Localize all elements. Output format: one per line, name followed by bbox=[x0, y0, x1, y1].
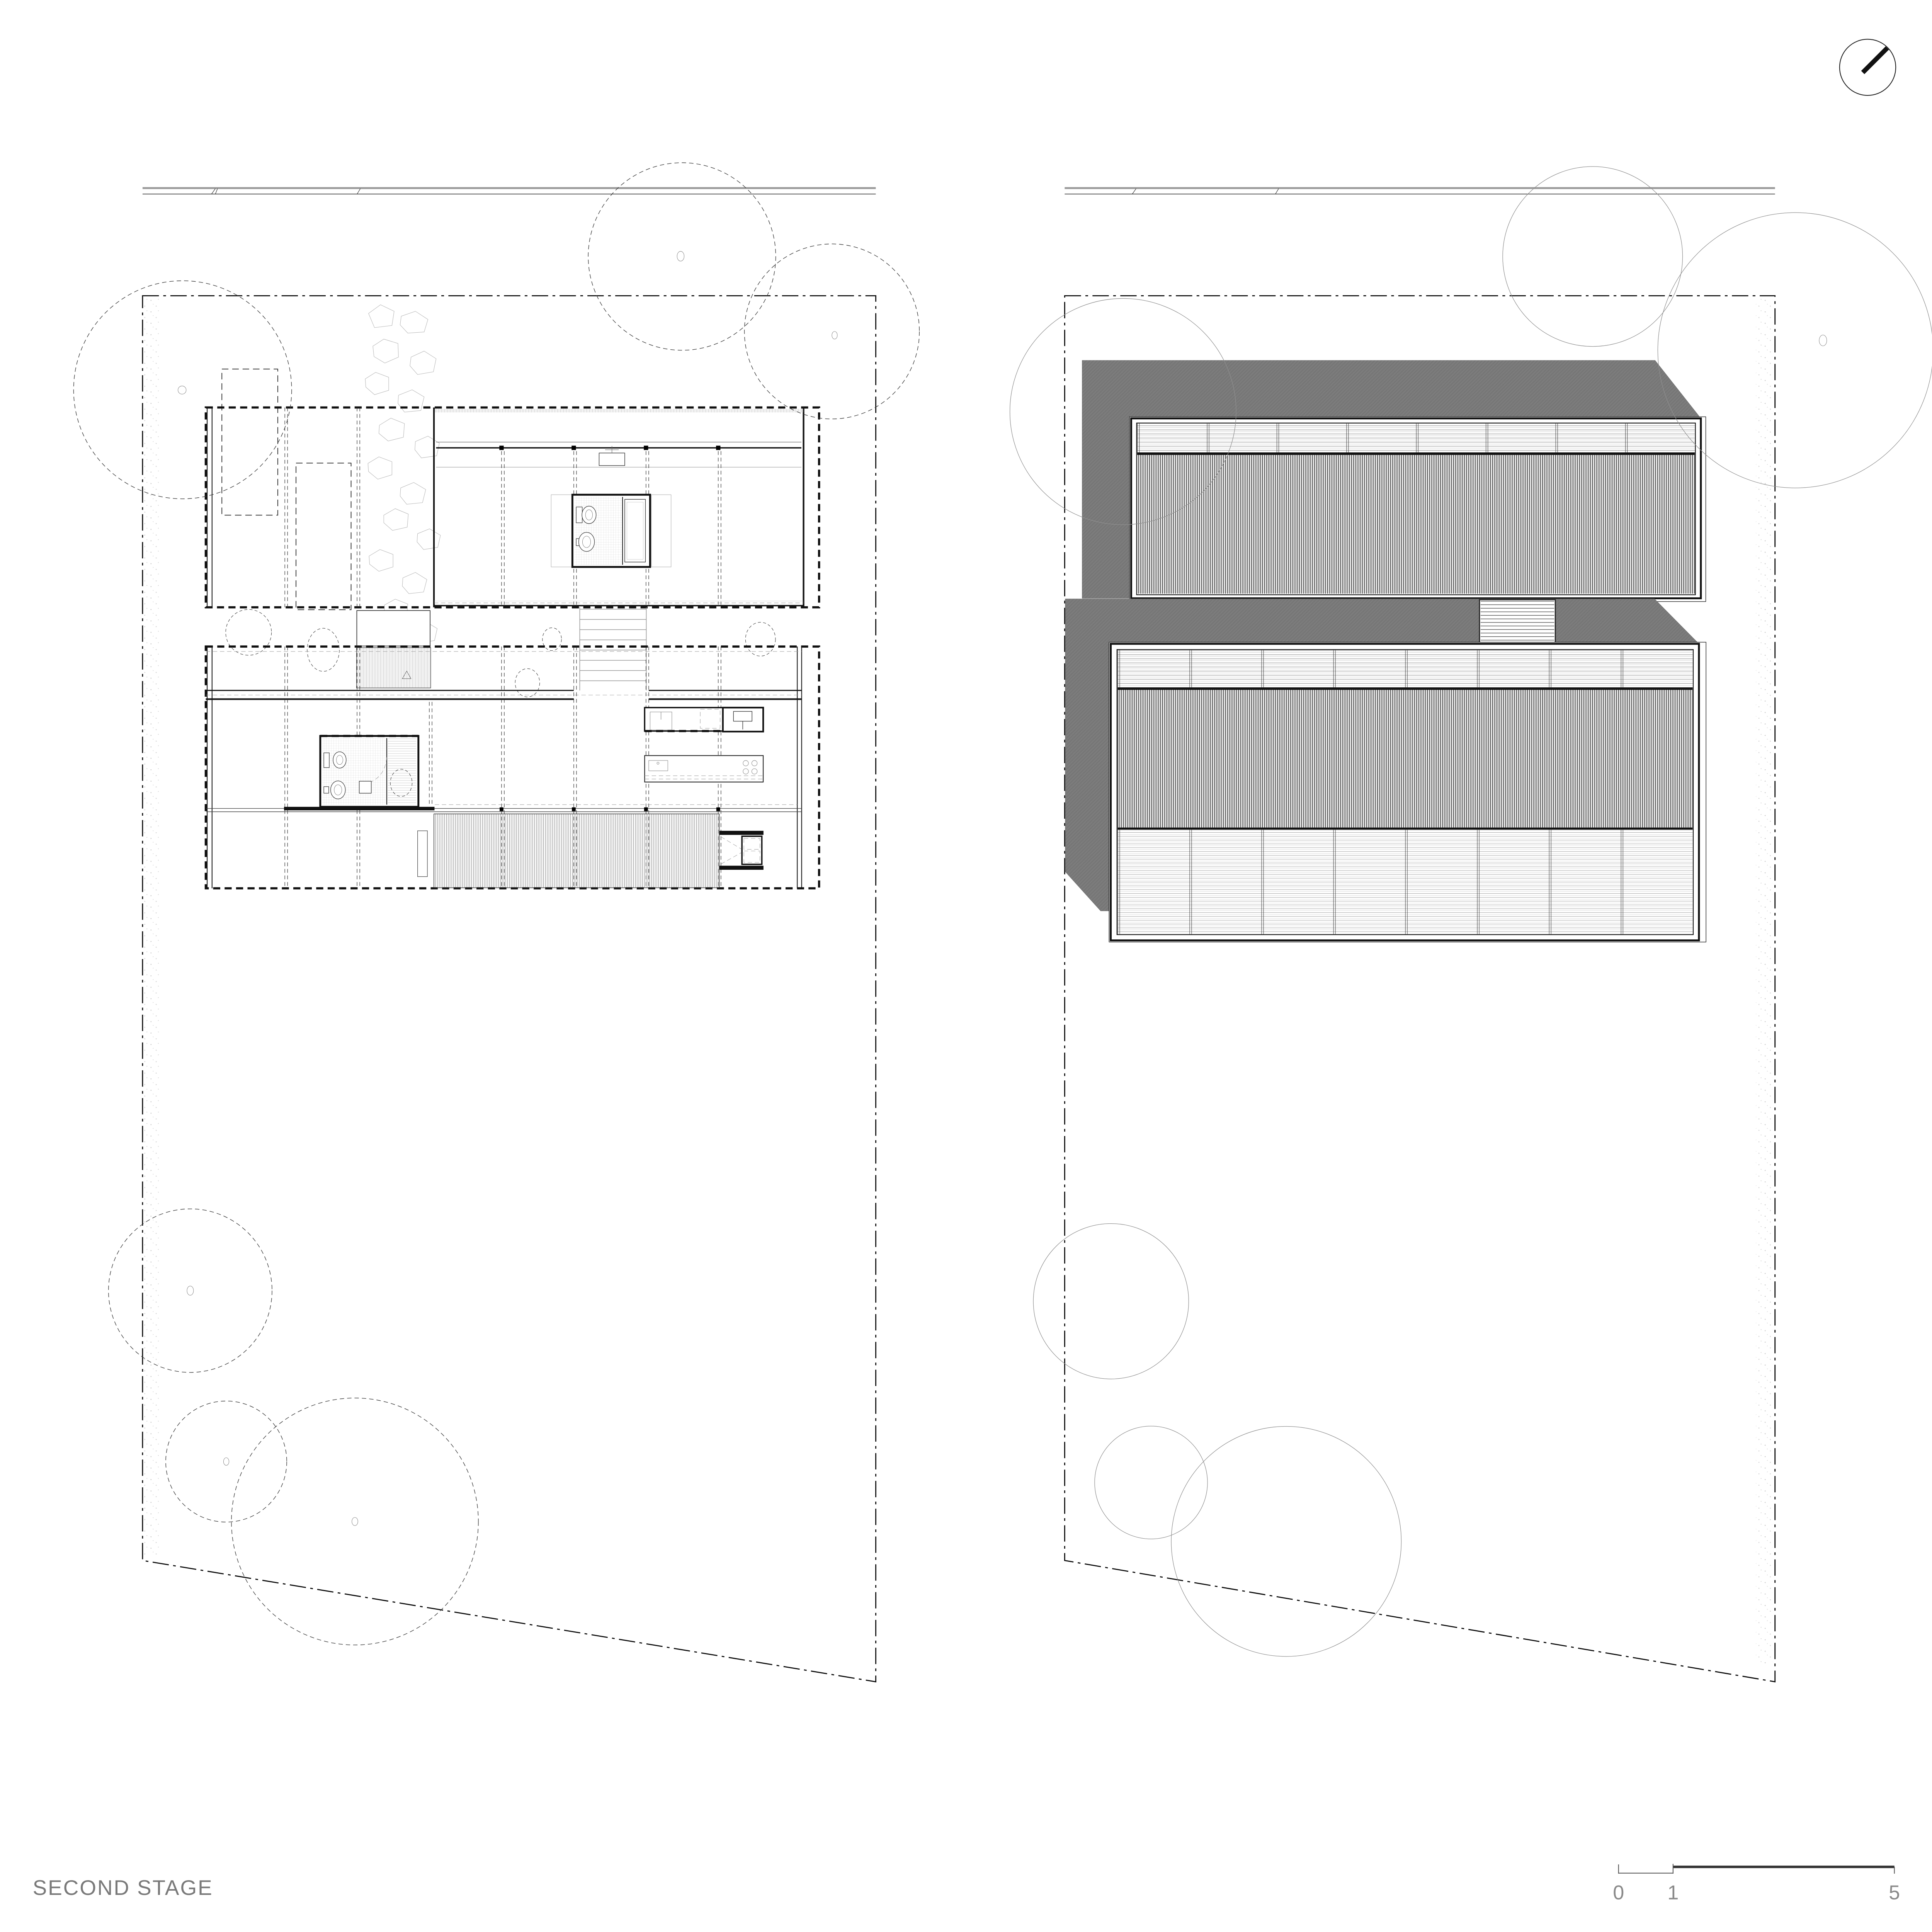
roof-edge-strip bbox=[434, 409, 804, 412]
bbq-grill bbox=[719, 831, 764, 870]
bathroom-core-lower bbox=[320, 736, 418, 807]
site-plan-panel bbox=[73, 163, 919, 1682]
column-square bbox=[500, 807, 720, 811]
corrugated-roof bbox=[1117, 690, 1692, 827]
scale-five: 5 bbox=[1889, 1881, 1900, 1904]
roof-plan-panel bbox=[1010, 167, 1932, 1682]
building-upper-bar bbox=[206, 408, 819, 607]
street-tick bbox=[357, 189, 360, 194]
street-edge-left bbox=[143, 188, 876, 194]
column-grid-line bbox=[285, 408, 360, 607]
planter-bed-dashed bbox=[222, 369, 278, 515]
street-edge-right bbox=[1065, 188, 1775, 194]
scale-zero: 0 bbox=[1613, 1881, 1624, 1904]
kitchen-counter bbox=[645, 707, 763, 731]
porch-wall bbox=[206, 690, 802, 699]
toilet bbox=[576, 506, 596, 524]
stone-path bbox=[365, 305, 440, 643]
roof-lower-volume bbox=[1065, 599, 1706, 942]
drawing-title: SECOND STAGE bbox=[33, 1876, 213, 1900]
property-boundary bbox=[143, 296, 876, 1682]
corrugated-roof bbox=[1137, 455, 1695, 594]
building-lower-bar bbox=[206, 646, 819, 888]
toilet bbox=[324, 752, 346, 768]
drawing-sheet: 0 1 5 SECOND STAGE bbox=[0, 0, 1932, 1932]
wardrobe bbox=[625, 499, 646, 562]
north-arrow-icon bbox=[1840, 39, 1896, 95]
scale-bar: 0 1 5 bbox=[1613, 1864, 1900, 1904]
bench bbox=[418, 831, 427, 877]
garden-bushes bbox=[226, 609, 776, 697]
entry-bridge bbox=[357, 611, 430, 646]
vanity bbox=[359, 781, 371, 793]
table bbox=[599, 446, 625, 466]
street-tick bbox=[211, 189, 218, 194]
architectural-drawing: 0 1 5 SECOND STAGE bbox=[0, 0, 1932, 1932]
sliding-door-track bbox=[206, 804, 802, 811]
street-tick bbox=[1276, 189, 1279, 194]
roof-upper-volume bbox=[1082, 361, 1706, 602]
entry-deck-panel bbox=[357, 648, 431, 688]
gravel-strip bbox=[1756, 298, 1772, 1663]
enclosed-room bbox=[434, 408, 804, 607]
trees-existing bbox=[73, 163, 919, 1645]
bathroom-core-upper bbox=[551, 495, 671, 567]
scale-one: 1 bbox=[1667, 1881, 1679, 1904]
gravel-strip bbox=[144, 298, 161, 1557]
planter-bed-dashed bbox=[296, 463, 351, 610]
wood-deck bbox=[434, 814, 719, 888]
deck-left-wall bbox=[207, 408, 212, 607]
stairs-main bbox=[580, 607, 646, 690]
connector-stair bbox=[1480, 600, 1555, 643]
street-tick bbox=[1132, 189, 1136, 194]
kitchen-island bbox=[645, 755, 763, 782]
